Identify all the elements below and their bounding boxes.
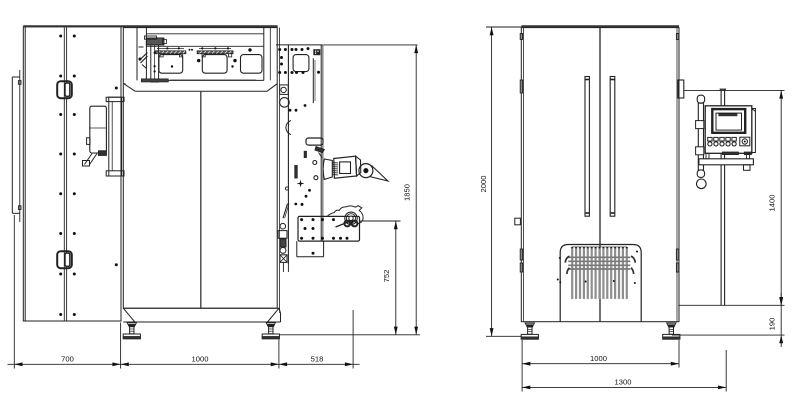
svg-text:190: 190 bbox=[768, 318, 777, 331]
svg-text:1400: 1400 bbox=[768, 195, 777, 212]
svg-text:1300: 1300 bbox=[615, 377, 632, 386]
svg-text:1000: 1000 bbox=[192, 355, 209, 364]
svg-text:700: 700 bbox=[61, 355, 74, 364]
svg-text:1000: 1000 bbox=[590, 354, 607, 363]
svg-text:518: 518 bbox=[311, 355, 324, 364]
svg-text:2000: 2000 bbox=[479, 176, 488, 193]
svg-text:1850: 1850 bbox=[403, 184, 412, 201]
svg-text:752: 752 bbox=[382, 270, 391, 283]
